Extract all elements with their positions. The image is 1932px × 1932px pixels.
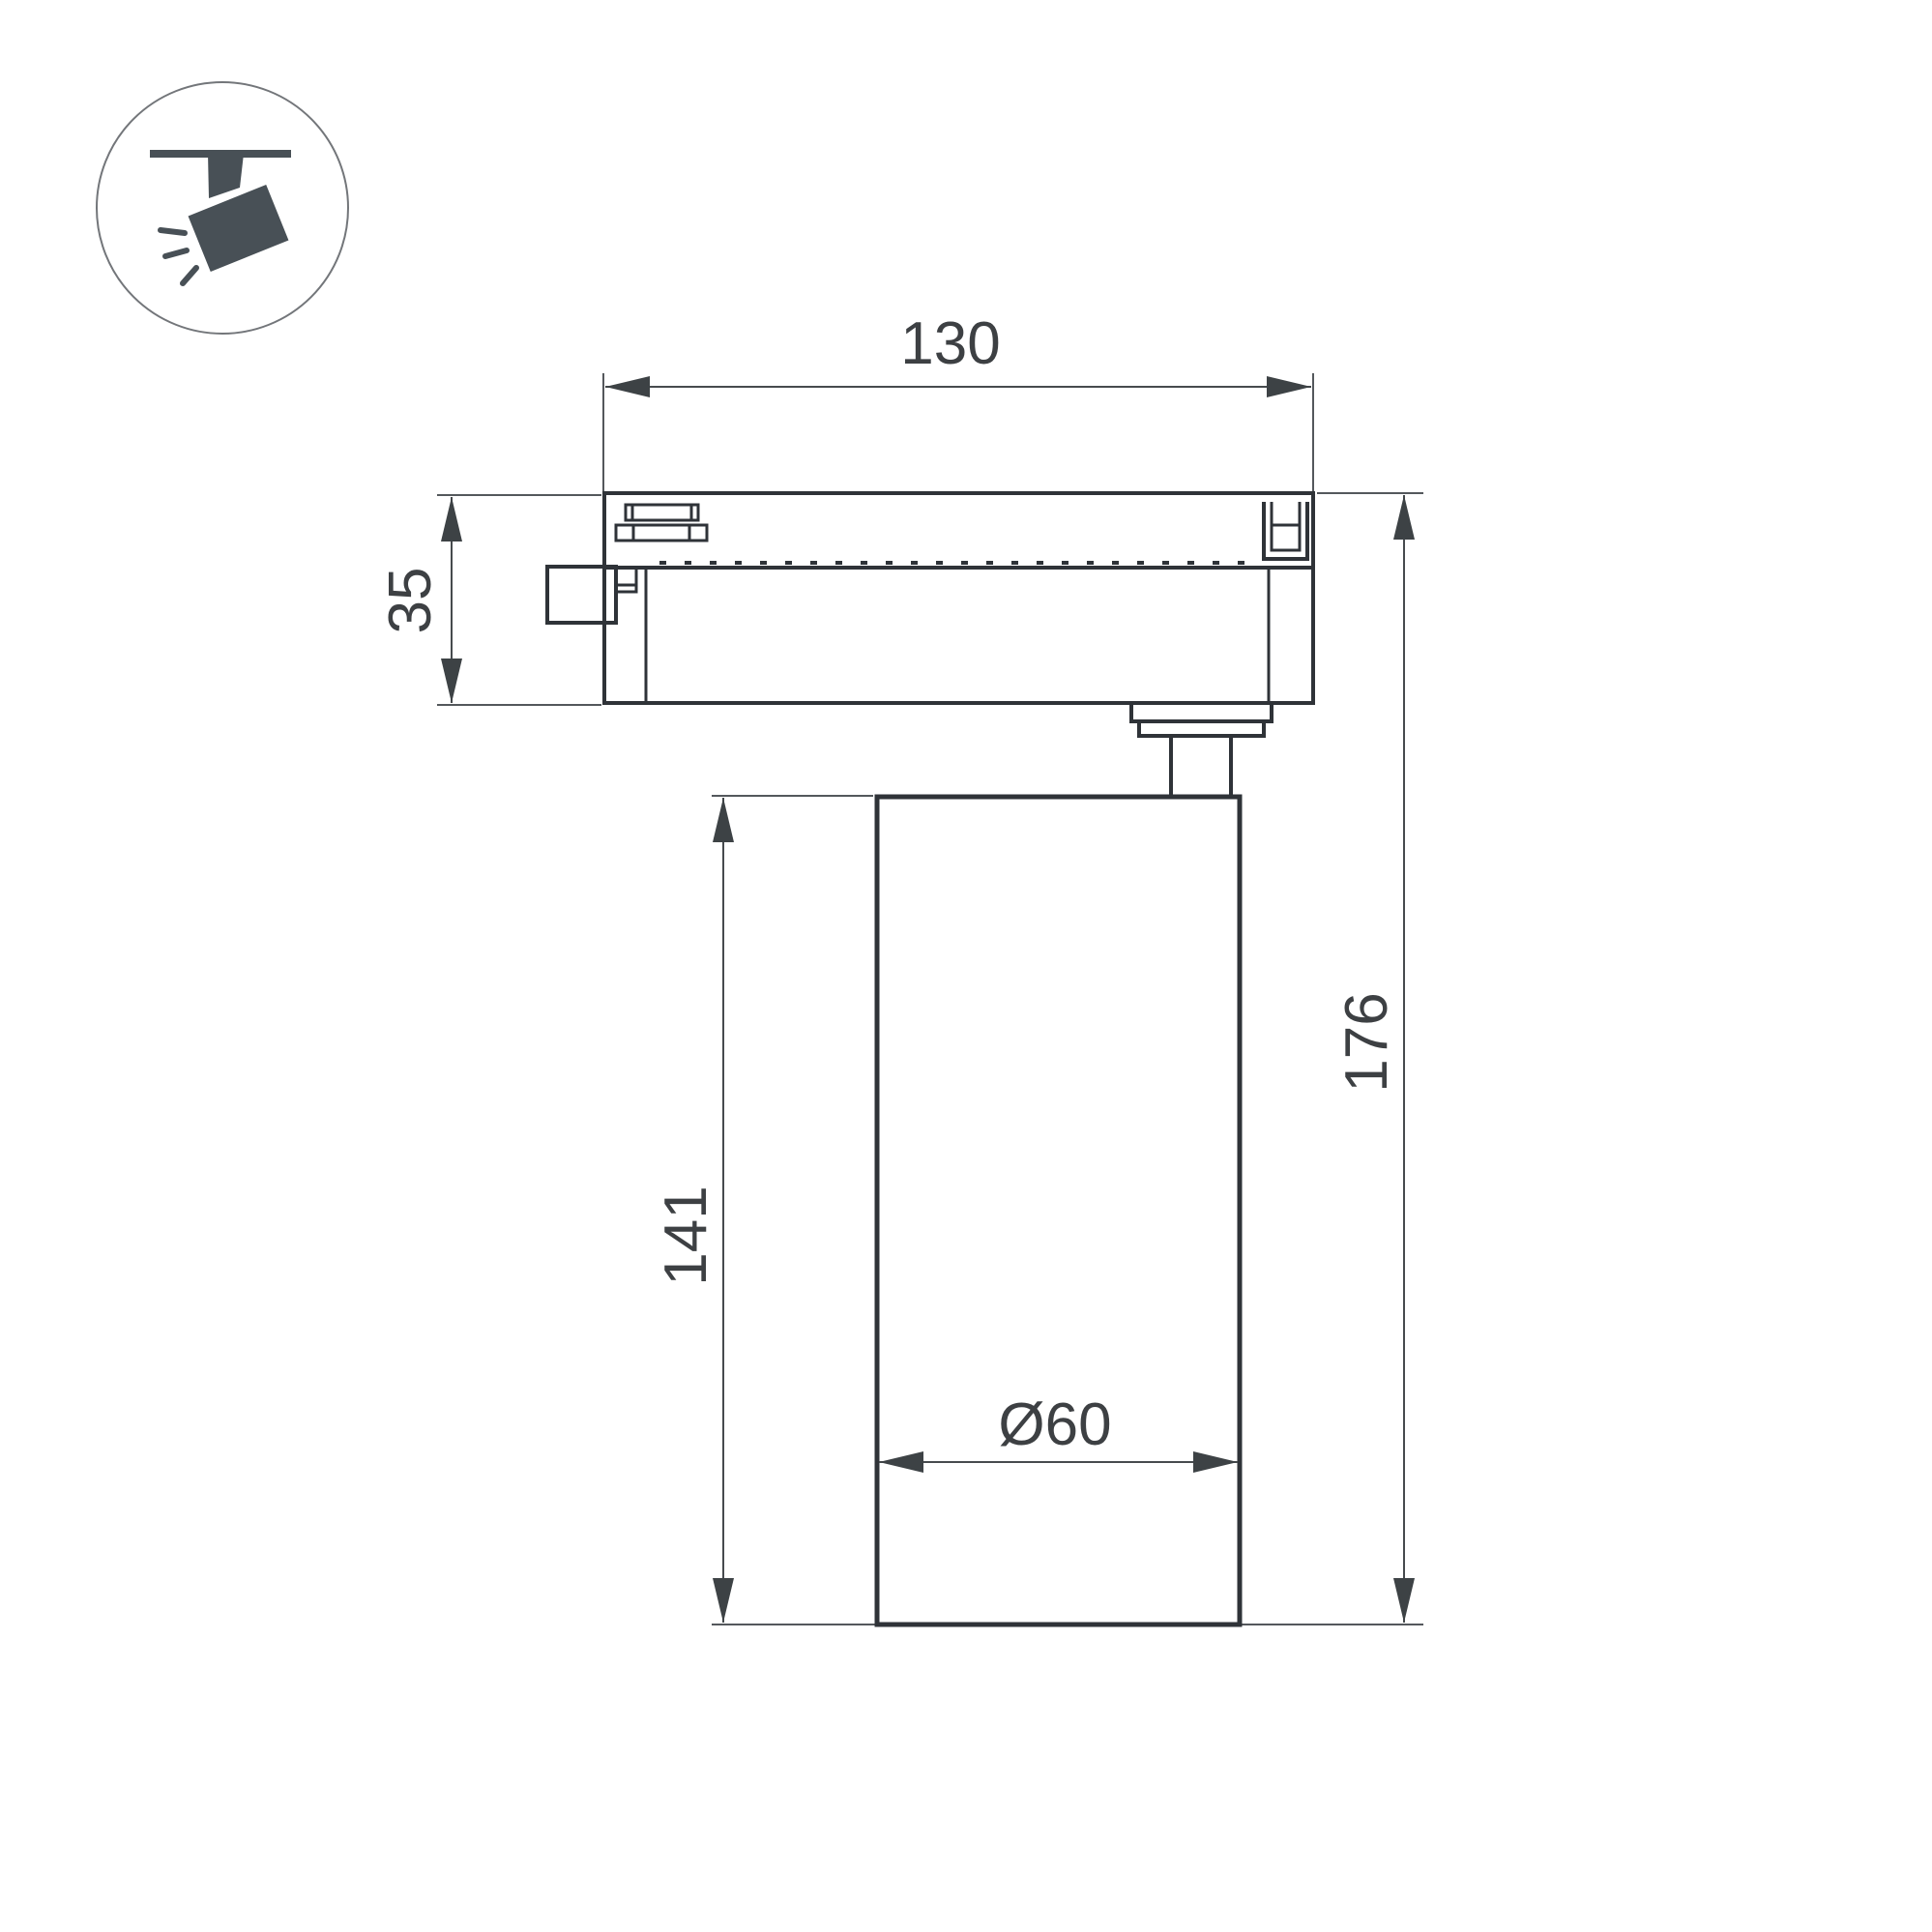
adapter-top-section xyxy=(604,493,1313,568)
neck-flange-upper xyxy=(1131,703,1272,721)
dim-label-adapter-height: 35 xyxy=(377,568,444,634)
dim-label-overall-height: 176 xyxy=(1333,992,1400,1092)
cylinder-body xyxy=(877,797,1240,1625)
arrowhead-left xyxy=(605,376,650,397)
adapter-body-section xyxy=(604,568,1313,703)
arrowhead-up xyxy=(713,798,734,842)
neck-flange-lower xyxy=(1139,721,1264,736)
dim-label-track-width: 130 xyxy=(900,310,1000,377)
dimension-drawing: 130 35 176 141 xyxy=(0,0,1932,1932)
arrowhead-up xyxy=(441,497,462,542)
drawing-canvas: 130 35 176 141 xyxy=(0,0,1932,1932)
arrowhead-down xyxy=(713,1578,734,1623)
arrowhead-down xyxy=(1393,1578,1415,1623)
arrowhead-up xyxy=(1393,495,1415,540)
dim-body-height: 141 xyxy=(653,796,873,1623)
dim-adapter-height: 35 xyxy=(377,495,601,705)
dim-label-body-height: 141 xyxy=(653,1186,719,1285)
dim-label-body-diameter: Ø60 xyxy=(998,1391,1111,1458)
arrowhead-down xyxy=(441,659,462,703)
spotlight-body xyxy=(877,703,1272,1625)
track-adapter xyxy=(547,493,1313,703)
arrowhead-right xyxy=(1267,376,1311,397)
dim-track-width: 130 xyxy=(603,310,1313,491)
ceiling-track-spotlight-icon xyxy=(97,82,348,334)
neck-stem xyxy=(1171,736,1231,797)
